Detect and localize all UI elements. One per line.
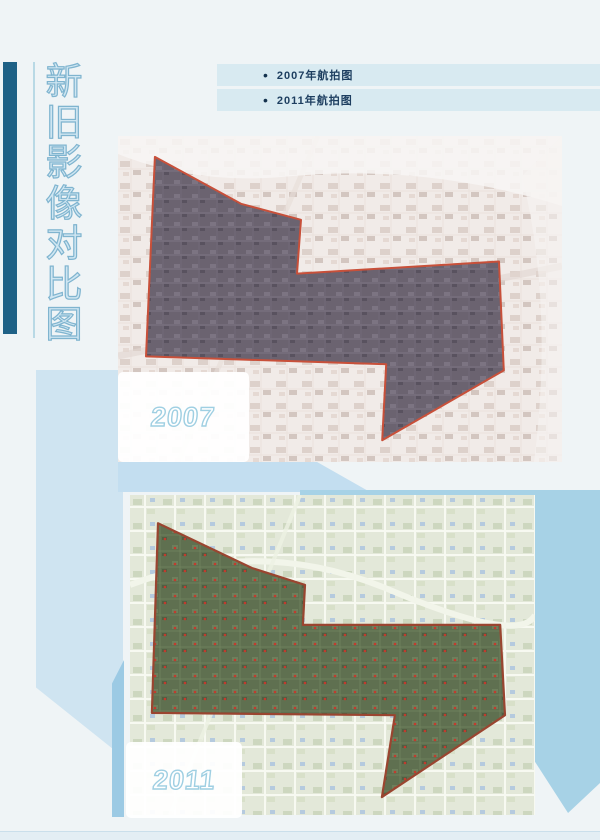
legend-item-label: 2007年航拍图 xyxy=(277,67,353,83)
vertical-title-char: 新 xyxy=(38,62,90,103)
legend-item-2007: • 2007年航拍图 xyxy=(217,64,600,86)
strip-mid-blue xyxy=(112,660,124,817)
vertical-title-char: 影 xyxy=(38,143,90,184)
band-diagonal-blue xyxy=(118,462,370,492)
vertical-title-char: 像 xyxy=(38,184,90,225)
sidebar-accent-bar xyxy=(3,62,17,334)
page: 新 旧 影 像 对 比 图 • 2007年航拍图 • 2011年航拍图 xyxy=(0,0,600,840)
map-2011-label-box: 2011 xyxy=(126,742,242,818)
vertical-title-char: 比 xyxy=(38,265,90,306)
map-2011-year-label: 2011 xyxy=(151,765,217,796)
bullet-icon: • xyxy=(263,93,268,107)
legend: • 2007年航拍图 • 2011年航拍图 xyxy=(217,64,600,114)
vertical-title-char: 旧 xyxy=(38,103,90,144)
bottom-strip xyxy=(0,831,600,840)
map-2007-year-label: 2007 xyxy=(150,402,217,433)
vertical-title-char: 图 xyxy=(38,305,90,346)
panel-pale-blue xyxy=(36,370,123,748)
panel-right-blue xyxy=(532,490,600,813)
map-2007-label-box: 2007 xyxy=(118,372,249,462)
sidebar-rule-line xyxy=(33,62,35,338)
vertical-title-char: 对 xyxy=(38,224,90,265)
bullet-icon: • xyxy=(263,68,268,82)
legend-item-2011: • 2011年航拍图 xyxy=(217,89,600,111)
vertical-title: 新 旧 影 像 对 比 图 xyxy=(38,62,90,346)
legend-item-label: 2011年航拍图 xyxy=(277,92,353,108)
